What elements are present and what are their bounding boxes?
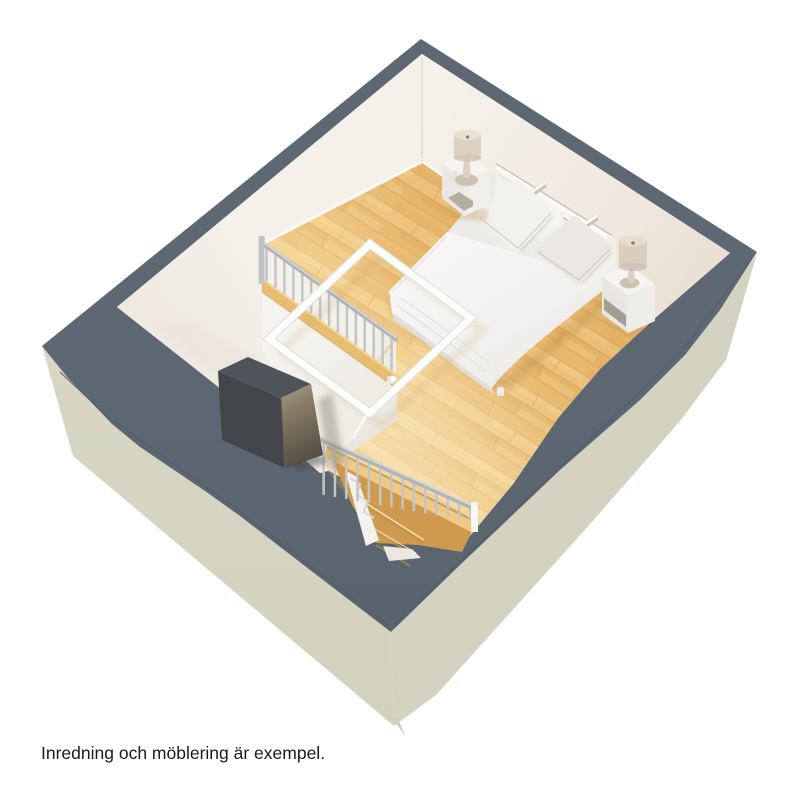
svg-text:Inredning och möblering är exe: Inredning och möblering är exempel. xyxy=(41,743,325,763)
